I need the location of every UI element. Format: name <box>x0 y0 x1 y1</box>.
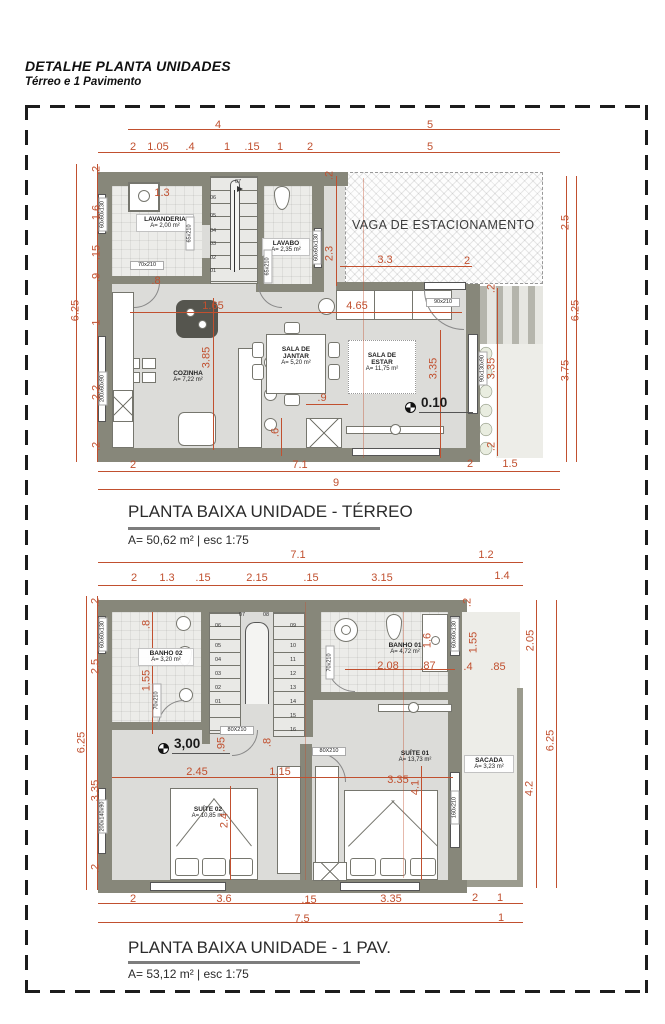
pillow <box>410 858 436 876</box>
room-area: A= 11,75 m² <box>352 366 412 373</box>
dim-label: 6.25 <box>546 726 557 756</box>
stair-step: 14 <box>286 699 300 705</box>
balcony-railing <box>517 688 523 887</box>
stair-step: 03 <box>206 241 220 247</box>
dim-line <box>98 471 560 472</box>
stair-step: 08 <box>259 612 273 618</box>
dim-label: 1 <box>265 142 295 153</box>
dim-label: .15 <box>188 573 218 584</box>
window-tag: 60x60x130 <box>99 618 108 652</box>
stove-burner <box>198 320 207 329</box>
door-tag: 65x210 <box>264 250 273 284</box>
dim-label: 1.6 <box>92 198 103 228</box>
dim-label: 4 <box>203 120 233 131</box>
room-label-vaga: VAGA DE ESTACIONAMENTO <box>352 218 534 232</box>
pillow <box>202 858 226 876</box>
dim-label: .15 <box>296 573 326 584</box>
frame-left <box>25 105 28 993</box>
dim-label: .2 <box>325 161 336 191</box>
chair <box>284 322 300 334</box>
chair <box>252 342 264 358</box>
room-area: A= 3,23 m² <box>467 764 511 771</box>
stair-step: 03 <box>211 671 225 677</box>
desk-knob <box>408 702 419 713</box>
cabinet <box>178 412 216 446</box>
room-label-sala-estar: SALA DE ESTAR A= 11,75 m² <box>352 352 412 373</box>
stair-step: 07 <box>231 179 245 185</box>
frame-bottom <box>25 990 648 993</box>
door-tag: 80X210 <box>312 747 346 756</box>
chair <box>252 364 264 380</box>
wall <box>98 600 467 612</box>
dim-label: 1.2 <box>471 550 501 561</box>
dim-label: .8 <box>263 728 274 758</box>
wardrobe <box>277 766 301 874</box>
stairs-rail <box>245 622 269 704</box>
dim-label: 4.65 <box>342 301 372 312</box>
dim-label: 2.15 <box>242 573 272 584</box>
door-tag: 90x210 <box>426 298 460 307</box>
dim-label: 2 <box>118 894 148 905</box>
stair-step: 05 <box>211 643 225 649</box>
frame-right <box>645 105 648 993</box>
window <box>340 882 420 891</box>
wall <box>300 744 312 880</box>
dim-label: 2.5 <box>561 208 572 238</box>
window <box>468 334 478 414</box>
room-label-banho02: BANHO 02 A= 3,20 m² <box>138 648 194 666</box>
stair-step: 01 <box>211 699 225 705</box>
stairs-rail <box>230 180 240 270</box>
sacada-floor <box>462 688 517 887</box>
stair-step: 10 <box>286 643 300 649</box>
stair-step: 07 <box>235 612 249 618</box>
washbasin-drain <box>341 625 351 635</box>
dim-label: 2 <box>295 142 325 153</box>
door-opening <box>424 282 466 290</box>
dim-label: 2 <box>119 573 149 584</box>
level-value: 3,00 <box>174 736 200 751</box>
dim-label: .85 <box>483 662 513 673</box>
wall <box>313 612 321 700</box>
stairs-arrowhead-icon <box>237 186 243 192</box>
dim-label: 3.75 <box>561 356 572 386</box>
stair-step: 13 <box>286 685 300 691</box>
stair-step: 01 <box>206 268 220 274</box>
room-area: A= 3,20 m² <box>141 657 191 664</box>
dim-label: .2 <box>487 274 498 304</box>
dim-label: 3.3 <box>370 255 400 266</box>
dim-line <box>440 330 441 458</box>
tv-knob <box>390 424 401 435</box>
stair-step: 11 <box>286 657 300 663</box>
dim-label: .2 <box>92 432 103 462</box>
door-tag: 70x210 <box>326 646 335 680</box>
window <box>150 882 226 891</box>
dim-label: 2.3 <box>325 239 336 269</box>
dim-label: 4.2 <box>525 774 536 804</box>
drawing-sheet: DETALHE PLANTA UNIDADES Térreo e 1 Pavim… <box>0 0 665 1024</box>
stair-step: 05 <box>206 213 220 219</box>
door-tag: 65x210 <box>186 217 195 251</box>
level-value: 0.10 <box>421 395 447 410</box>
dim-label: .15 <box>237 142 267 153</box>
dim-label: 2 <box>455 459 485 470</box>
dim-line <box>98 585 523 586</box>
door-tag: 70x210 <box>130 261 164 270</box>
cabinet <box>142 358 156 369</box>
wall <box>313 692 462 700</box>
stair-step: 12 <box>286 671 300 677</box>
cabinet <box>142 372 156 383</box>
balcony-railing <box>462 880 523 887</box>
level-marker-icon <box>158 743 169 754</box>
stair-step: 09 <box>286 623 300 629</box>
dim-label: 2 <box>118 460 148 471</box>
dim-label: 1.05 <box>143 142 173 153</box>
dim-label: .9 <box>92 263 103 293</box>
level-line <box>419 412 473 413</box>
dim-label: 3.6 <box>209 894 239 905</box>
dim-label: 3.35 <box>429 354 440 384</box>
dim-label: 7.1 <box>283 550 313 561</box>
dim-label: 5 <box>415 120 445 131</box>
stair-step: 02 <box>206 255 220 261</box>
dim-label: 4.1 <box>411 773 422 803</box>
dim-label: 3.35 <box>376 894 406 905</box>
stairs-arrow <box>234 190 235 272</box>
pillow <box>229 858 253 876</box>
dim-label: 1.55 <box>469 628 480 658</box>
wall <box>305 612 313 737</box>
dim-label: .9 <box>307 393 337 404</box>
dim-label: 1.5 <box>495 459 525 470</box>
dim-label: 1.3 <box>152 573 182 584</box>
dim-label: 3.85 <box>202 343 213 373</box>
window-tag: 60x60x130 <box>451 618 460 652</box>
chair <box>284 394 300 406</box>
dim-label: .2 <box>92 156 103 186</box>
window-tag: 160x210 <box>451 791 460 825</box>
sofa-cushion-line <box>412 290 413 320</box>
dim-label: 1.55 <box>142 666 153 696</box>
wall <box>98 722 202 730</box>
terreo-title-rule <box>128 527 380 530</box>
wall <box>201 612 209 730</box>
window-tag: 60x60x130 <box>313 231 322 265</box>
dim-label: .2 <box>463 588 474 618</box>
dim-label: .4 <box>175 142 205 153</box>
dim-label: 3.35 <box>383 775 413 786</box>
stair-step: 04 <box>211 657 225 663</box>
shaft <box>313 862 347 881</box>
sheet-subtitle: Térreo e 1 Pavimento <box>25 76 141 88</box>
dim-line <box>98 562 523 563</box>
dim-label: 7.1 <box>285 460 315 471</box>
room-name: LAVABO <box>265 240 307 247</box>
dim-label: 1.15 <box>265 767 295 778</box>
dim-label: 1 <box>486 913 516 924</box>
dim-label: 2.5 <box>91 652 102 682</box>
stair-step: 06 <box>206 195 220 201</box>
level-marker-icon <box>405 402 416 413</box>
dim-label: .2 <box>91 588 102 618</box>
dim-label: 9 <box>321 478 351 489</box>
dim-label: 1.4 <box>487 571 517 582</box>
room-name: SALA DE JANTAR <box>270 346 322 360</box>
room-name: SACADA <box>467 757 511 764</box>
dim-label: .6 <box>271 418 282 448</box>
dim-label: .2 <box>487 432 498 462</box>
dim-label: 1.3 <box>147 188 177 199</box>
dim-label: 5 <box>415 142 445 153</box>
dim-label: 6.25 <box>571 296 582 326</box>
kitchen-island <box>238 348 262 448</box>
door-tag: 70x210 <box>153 684 162 718</box>
dim-label: 1 <box>485 893 515 904</box>
dim-label: 3.15 <box>367 573 397 584</box>
room-area: A= 13,73 m² <box>384 757 446 764</box>
dim-label: .4 <box>453 662 483 673</box>
dim-label: .95 <box>217 730 228 760</box>
room-area: A= 2,00 m² <box>139 223 191 230</box>
dim-label: .15 <box>294 895 324 906</box>
frame-top <box>25 105 648 108</box>
pav1-plan-subtitle: A= 53,12 m² | esc 1:75 <box>128 967 249 981</box>
dim-label: 3.35 <box>91 776 102 806</box>
room-label-sacada: SACADA A= 3,23 m² <box>464 755 514 773</box>
room-label-suite01: SUÍTE 01 A= 13,73 m² <box>384 750 446 764</box>
dim-line <box>130 312 462 313</box>
room-name: LAVANDERIA <box>139 216 191 223</box>
room-label-sala-jantar: SALA DE JANTAR A= 5,20 m² <box>270 346 322 367</box>
washbasin <box>176 616 191 631</box>
dim-label: .87 <box>413 661 443 672</box>
dim-label: 2.05 <box>526 626 537 656</box>
room-name: BANHO 02 <box>141 650 191 657</box>
stair-step: 02 <box>211 685 225 691</box>
room-area: A= 7,22 m² <box>160 377 216 384</box>
dim-label: 2 <box>452 256 482 267</box>
wardrobe <box>315 766 339 874</box>
dim-label: 1 <box>92 308 103 338</box>
stair-step: 06 <box>211 623 225 629</box>
stair-step: 04 <box>206 228 220 234</box>
dim-label: 2.2 <box>92 378 103 408</box>
kitchen-counter <box>112 292 134 448</box>
dim-label: 6.25 <box>71 296 82 326</box>
terreo-plan-subtitle: A= 50,62 m² | esc 1:75 <box>128 533 249 547</box>
dim-label: 1.6 <box>423 626 434 656</box>
pillow <box>350 858 376 876</box>
terreo-plan-title: PLANTA BAIXA UNIDADE - TÉRREO <box>128 502 413 522</box>
dim-line <box>306 404 348 405</box>
patio-area <box>496 344 543 458</box>
room-name: SALA DE ESTAR <box>352 352 412 366</box>
pav1-plan-title: PLANTA BAIXA UNIDADE - 1 PAV. <box>128 938 391 958</box>
dim-label: 7.5 <box>287 914 317 925</box>
dim-label: .8 <box>141 276 171 287</box>
chair <box>328 364 340 380</box>
stair-step: 16 <box>286 727 300 733</box>
room-area: A= 5,20 m² <box>270 360 322 367</box>
dim-label: 1.65 <box>198 301 228 312</box>
dim-line <box>336 176 337 286</box>
dim-label: 2.45 <box>182 767 212 778</box>
dim-label: .2 <box>91 854 102 884</box>
dim-label: 6.25 <box>77 728 88 758</box>
pillow <box>175 858 199 876</box>
shaft <box>306 418 342 448</box>
room-name: SUÍTE 01 <box>384 750 446 757</box>
window <box>352 448 440 456</box>
sofa-cushion-line <box>374 290 375 320</box>
stair-step: 15 <box>286 713 300 719</box>
dim-label: 2.08 <box>373 661 403 672</box>
dim-label: .8 <box>142 610 153 640</box>
dim-label: 3.35 <box>487 354 498 384</box>
dim-line <box>128 129 560 130</box>
chair <box>328 342 340 358</box>
dim-label: 2.4 <box>220 806 231 836</box>
sheet-title: DETALHE PLANTA UNIDADES <box>25 58 231 74</box>
grid-line <box>305 602 306 880</box>
dim-line <box>98 489 560 490</box>
kitchen-sink <box>113 390 133 422</box>
pav1-title-rule <box>128 961 360 964</box>
